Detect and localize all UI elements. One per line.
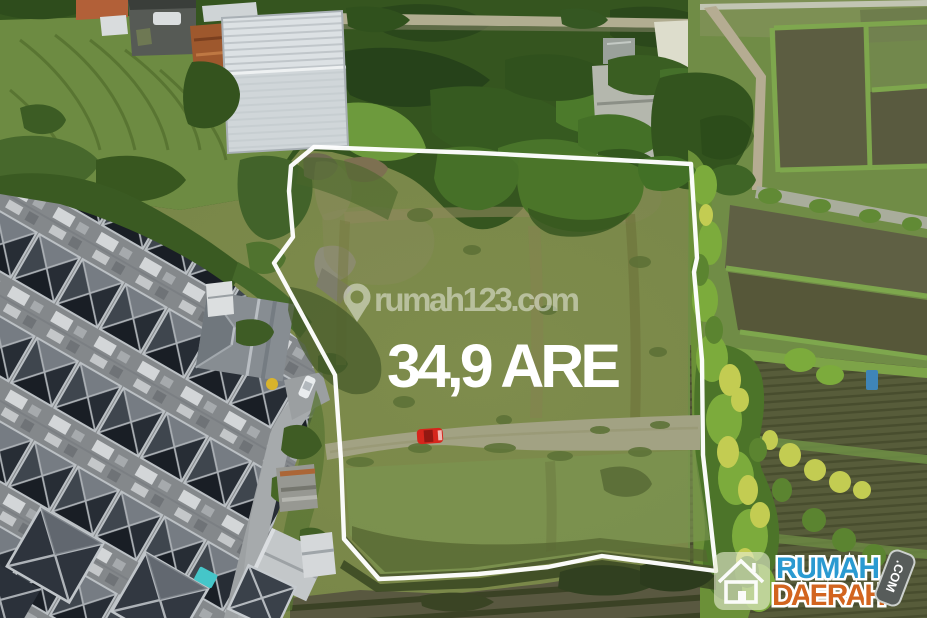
svg-text:rumah123.com: rumah123.com [374, 281, 580, 318]
svg-text:DAERAH: DAERAH [772, 579, 887, 612]
svg-text:34,9 ARE: 34,9 ARE [387, 332, 621, 400]
